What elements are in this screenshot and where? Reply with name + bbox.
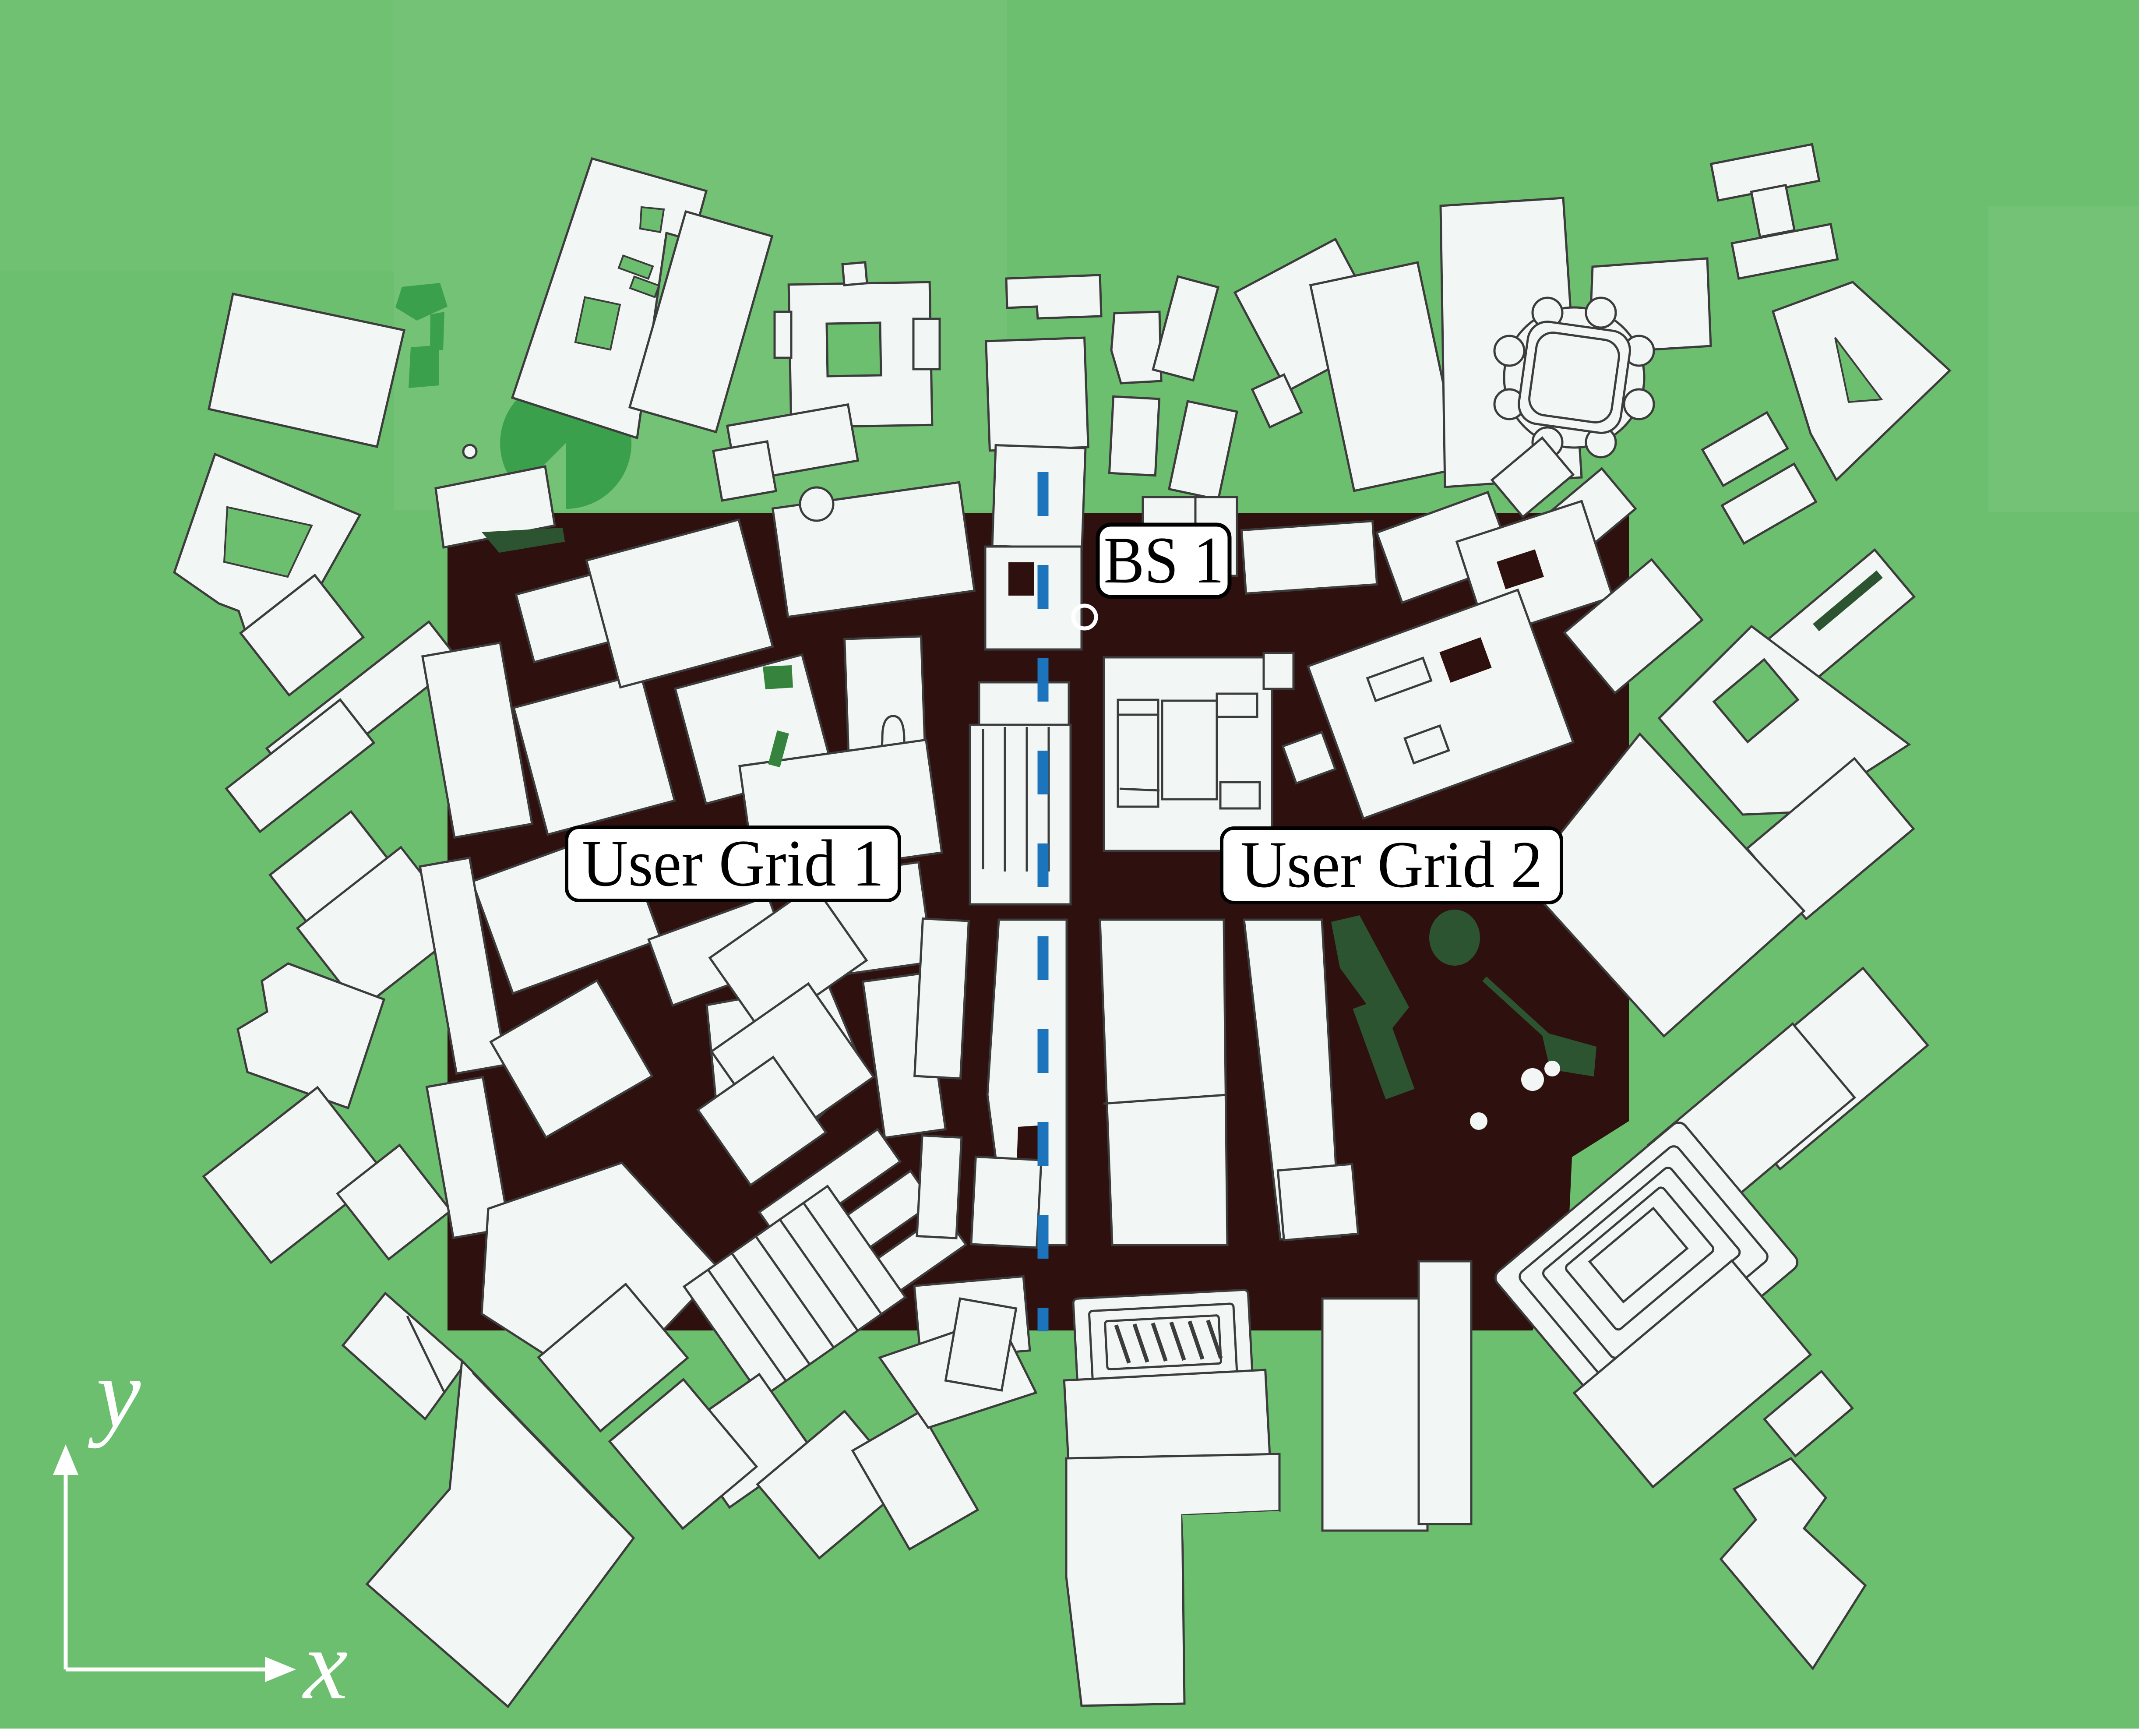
svg-text:x: x (302, 1610, 348, 1720)
svg-text:User Grid 1: User Grid 1 (582, 826, 884, 900)
svg-text:User Grid 2: User Grid 2 (1240, 828, 1543, 901)
svg-text:BS 1: BS 1 (1104, 523, 1224, 597)
